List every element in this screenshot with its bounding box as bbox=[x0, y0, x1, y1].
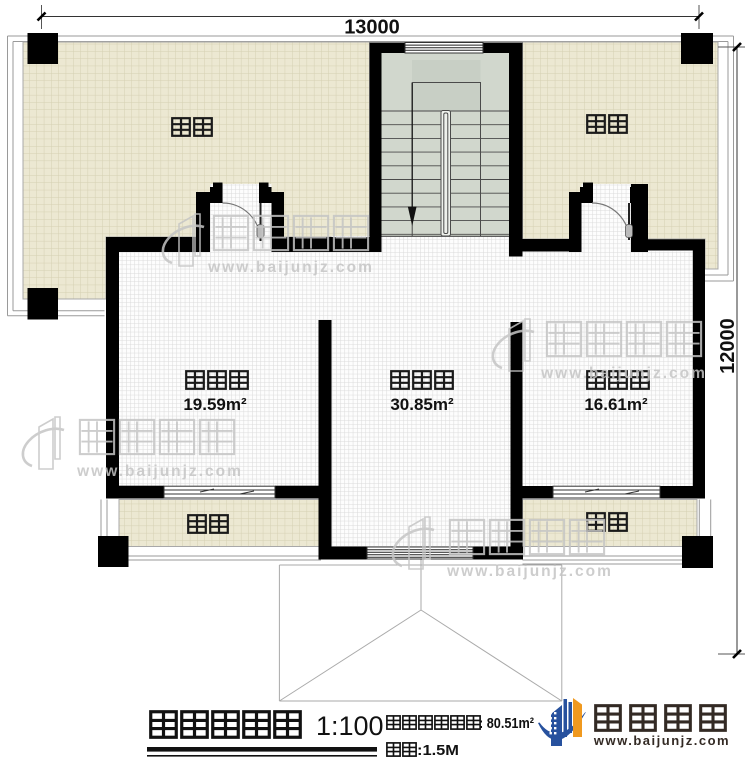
svg-text:1:100: 1:100 bbox=[316, 711, 384, 741]
svg-text:www.baijunjz.com: www.baijunjz.com bbox=[540, 365, 707, 382]
svg-text:16.61m²: 16.61m² bbox=[584, 395, 648, 414]
svg-text:www.baijunjz.com: www.baijunjz.com bbox=[593, 733, 730, 748]
svg-text:www.baijunjz.com: www.baijunjz.com bbox=[446, 563, 613, 580]
svg-text:13000: 13000 bbox=[344, 17, 400, 39]
svg-text:: 80.51m²: : 80.51m² bbox=[479, 715, 534, 732]
svg-text:30.85m²: 30.85m² bbox=[390, 395, 454, 414]
svg-text::1.5M: :1.5M bbox=[417, 742, 459, 759]
svg-text:www.baijunjz.com: www.baijunjz.com bbox=[76, 463, 243, 480]
svg-text:19.59m²: 19.59m² bbox=[183, 395, 247, 414]
svg-text:12000: 12000 bbox=[717, 318, 739, 374]
svg-text:www.baijunjz.com: www.baijunjz.com bbox=[207, 259, 374, 276]
